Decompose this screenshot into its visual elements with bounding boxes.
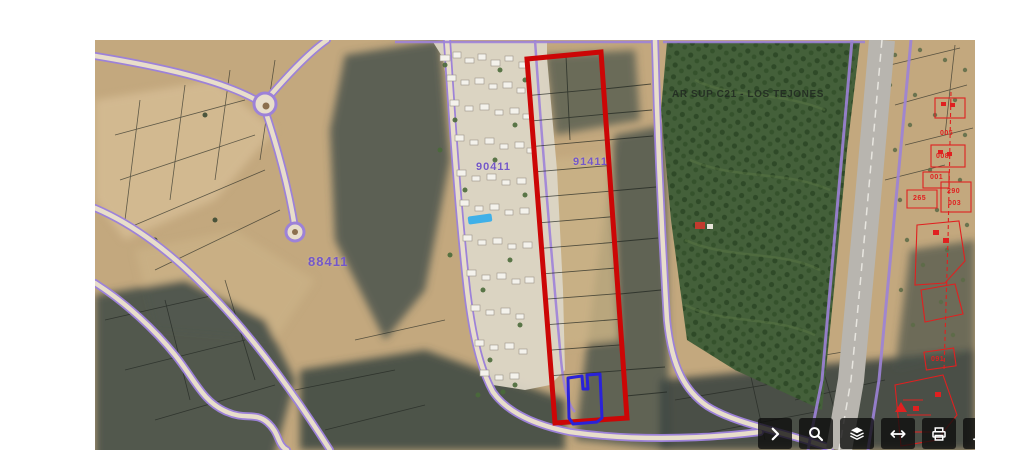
cadastral-number: 008	[936, 153, 949, 160]
map-viewport[interactable]: 88411 90411 91411 AR SUP C21 - LOS TEJON…	[95, 40, 975, 450]
toolbar-button-zoom[interactable]	[799, 418, 833, 449]
layers-icon	[848, 425, 866, 443]
cadastral-number: 003	[948, 200, 961, 207]
cadastral-number: 091	[931, 356, 944, 363]
printer-icon	[930, 425, 948, 443]
cadastral-number: 005	[940, 130, 953, 137]
area-label-los-tejones: AR SUP C21 - LOS TEJONES	[672, 89, 824, 100]
measure-icon	[889, 425, 907, 443]
toolbar-button-measure[interactable]	[881, 418, 915, 449]
aerial-imagery	[95, 40, 975, 450]
parcel-label-90411: 90411	[476, 161, 511, 173]
toolbar-button-layers[interactable]	[840, 418, 874, 449]
toolbar-button-expand[interactable]	[758, 418, 792, 449]
toolbar-button-download[interactable]	[963, 418, 975, 449]
map-toolbar	[758, 418, 975, 449]
cadastral-number: 001	[930, 174, 943, 181]
cadastral-number: 290	[947, 188, 960, 195]
page: 88411 90411 91411 AR SUP C21 - LOS TEJON…	[0, 0, 1024, 450]
search-icon	[807, 425, 825, 443]
cadastral-number: 265	[913, 195, 926, 202]
parcel-label-91411: 91411	[573, 156, 608, 168]
chevron-right-icon	[766, 425, 784, 443]
download-icon	[971, 425, 975, 443]
parcel-label-88411: 88411	[308, 254, 348, 269]
toolbar-button-print[interactable]	[922, 418, 956, 449]
